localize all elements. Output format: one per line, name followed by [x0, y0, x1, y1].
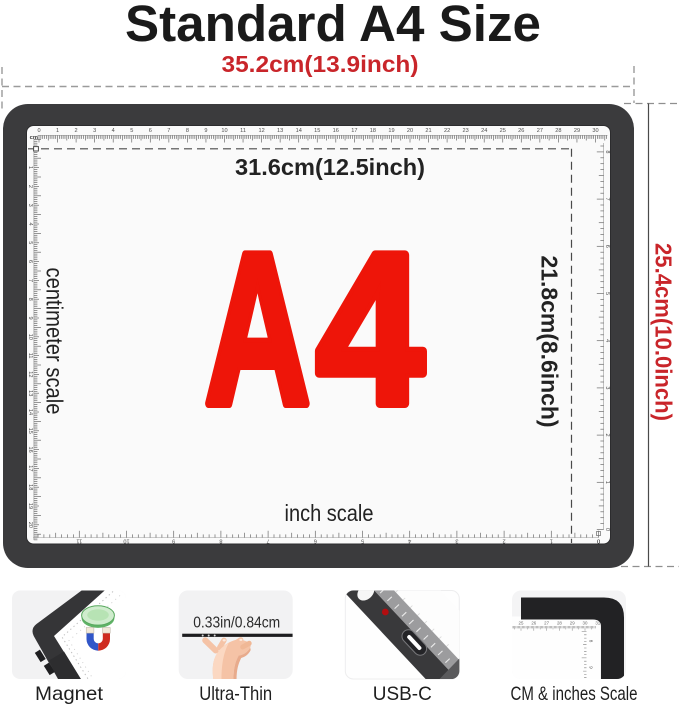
- svg-text:19: 19: [27, 503, 33, 509]
- svg-text:1: 1: [56, 128, 59, 134]
- svg-text:6: 6: [27, 260, 33, 263]
- svg-text:A: A: [205, 208, 311, 450]
- svg-text:19: 19: [388, 128, 394, 134]
- svg-text:4: 4: [604, 339, 610, 342]
- svg-text:22: 22: [444, 128, 450, 134]
- svg-text:13: 13: [27, 390, 33, 396]
- svg-text:21.8cm(8.6inch): 21.8cm(8.6inch): [537, 256, 563, 428]
- svg-text:6: 6: [604, 245, 610, 248]
- svg-text:8: 8: [604, 150, 610, 153]
- svg-text:4: 4: [27, 222, 33, 225]
- svg-text:Ultra-Thin: Ultra-Thin: [199, 683, 272, 704]
- svg-text:10: 10: [27, 334, 33, 340]
- svg-text:26: 26: [518, 128, 524, 134]
- svg-text:4: 4: [112, 128, 115, 134]
- svg-text:12: 12: [258, 128, 264, 134]
- svg-text:CM & inches Scale: CM & inches Scale: [511, 683, 638, 704]
- svg-text:31: 31: [595, 621, 600, 626]
- svg-text:2: 2: [27, 185, 33, 188]
- svg-text:20: 20: [27, 522, 33, 528]
- svg-text:14: 14: [296, 128, 302, 134]
- svg-text:4: 4: [408, 538, 411, 544]
- svg-text:16: 16: [333, 128, 339, 134]
- svg-text:20: 20: [407, 128, 413, 134]
- svg-text:1: 1: [27, 166, 33, 169]
- svg-text:9: 9: [204, 128, 207, 134]
- svg-text:5: 5: [361, 538, 364, 544]
- svg-text:25.4cm(10.0inch): 25.4cm(10.0inch): [651, 243, 677, 421]
- svg-text:8: 8: [219, 538, 222, 544]
- svg-text:29: 29: [570, 621, 575, 626]
- svg-text:35.2cm(13.9inch): 35.2cm(13.9inch): [222, 51, 419, 77]
- svg-text:1: 1: [604, 481, 610, 484]
- svg-text:17: 17: [351, 128, 357, 134]
- svg-text:6: 6: [314, 538, 317, 544]
- svg-text:31.6cm(12.5inch): 31.6cm(12.5inch): [235, 154, 425, 180]
- svg-text:8: 8: [589, 640, 594, 643]
- svg-text:26: 26: [531, 621, 536, 626]
- svg-text:11: 11: [240, 128, 246, 134]
- svg-text:14: 14: [27, 409, 33, 415]
- svg-text:9: 9: [172, 538, 175, 544]
- svg-text:16: 16: [27, 446, 33, 452]
- svg-text:24: 24: [481, 128, 487, 134]
- svg-text:inch scale: inch scale: [285, 500, 374, 526]
- svg-text:15: 15: [27, 428, 33, 434]
- svg-text:8: 8: [27, 298, 33, 301]
- svg-text:5: 5: [27, 241, 33, 244]
- svg-text:USB-C: USB-C: [373, 683, 432, 704]
- svg-text:7: 7: [167, 128, 170, 134]
- svg-text:Magnet: Magnet: [35, 683, 104, 704]
- svg-text:0.33in/0.84cm: 0.33in/0.84cm: [193, 615, 280, 632]
- svg-text:11: 11: [27, 353, 33, 359]
- svg-text:7: 7: [267, 538, 270, 544]
- svg-text:11: 11: [76, 538, 82, 544]
- svg-text:3: 3: [604, 386, 610, 389]
- svg-text:27: 27: [544, 621, 549, 626]
- svg-text:1: 1: [550, 538, 553, 544]
- svg-text:7: 7: [604, 198, 610, 201]
- svg-text:17: 17: [27, 465, 33, 471]
- svg-text:5: 5: [604, 292, 610, 295]
- svg-text:18: 18: [27, 484, 33, 490]
- svg-text:4: 4: [316, 208, 424, 450]
- svg-text:5: 5: [130, 128, 133, 134]
- svg-text:30: 30: [592, 128, 598, 134]
- svg-text:27: 27: [537, 128, 543, 134]
- svg-text:Standard A4 Size: Standard A4 Size: [125, 0, 541, 52]
- svg-text:3: 3: [27, 204, 33, 207]
- svg-text:21: 21: [425, 128, 431, 134]
- svg-text:13: 13: [277, 128, 283, 134]
- svg-text:23: 23: [463, 128, 469, 134]
- svg-text:9: 9: [589, 666, 594, 669]
- svg-text:12: 12: [27, 371, 33, 377]
- svg-text:29: 29: [574, 128, 580, 134]
- svg-text:7: 7: [27, 279, 33, 282]
- svg-text:8: 8: [186, 128, 189, 134]
- svg-text:6: 6: [149, 128, 152, 134]
- svg-text:3: 3: [455, 538, 458, 544]
- svg-text:2: 2: [604, 434, 610, 437]
- svg-text:10: 10: [123, 538, 129, 544]
- svg-text:25: 25: [519, 621, 524, 626]
- svg-text:centimeter scale: centimeter scale: [42, 268, 68, 415]
- svg-text:25: 25: [500, 128, 506, 134]
- svg-text:2: 2: [503, 538, 506, 544]
- svg-text:9: 9: [27, 316, 33, 319]
- svg-text:10: 10: [221, 128, 227, 134]
- svg-text:15: 15: [314, 128, 320, 134]
- svg-text:2: 2: [75, 128, 78, 134]
- svg-text:28: 28: [557, 621, 562, 626]
- svg-text:0: 0: [597, 538, 600, 544]
- svg-text:0: 0: [604, 528, 610, 531]
- svg-text:30: 30: [583, 621, 588, 626]
- svg-text:18: 18: [370, 128, 376, 134]
- svg-text:0: 0: [37, 128, 40, 134]
- svg-text:3: 3: [93, 128, 96, 134]
- svg-text:28: 28: [555, 128, 561, 134]
